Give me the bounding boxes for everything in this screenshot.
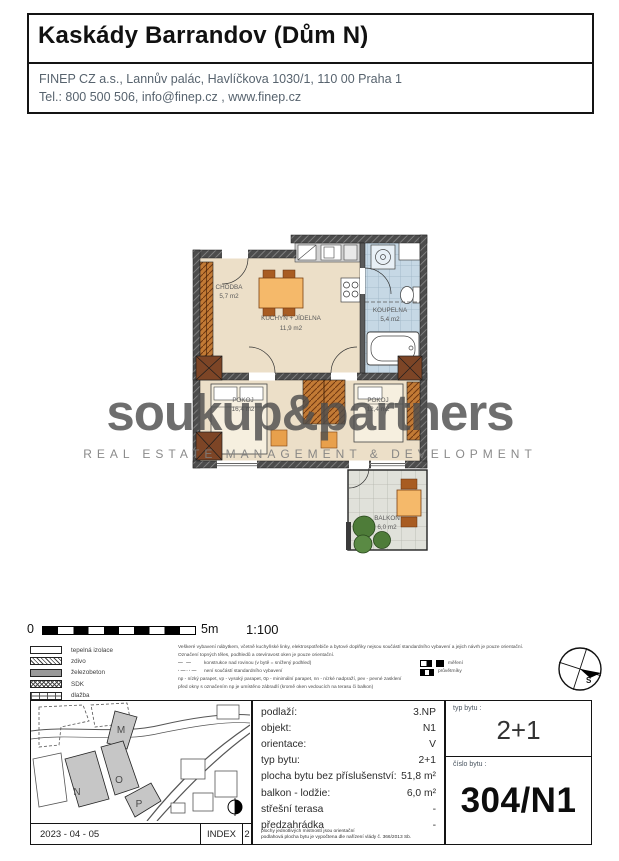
masonry-swatch [30,657,62,665]
plan-date: 2023 - 04 - 05 [31,824,200,844]
row-label: střešní terasa [261,804,323,815]
row-label: balkon - lodžie: [261,788,330,799]
table-row: podlaží:3.NP [253,704,444,720]
legend-symbol-right-label: měření [448,661,463,667]
map-compass-icon [228,798,242,816]
row-label: typ bytu: [261,755,300,766]
legend-note-3: np - nízký parapet, vp - vysoký parapet,… [178,677,554,683]
room-name-balkon: BALKON [374,515,400,522]
unit-type-cell: typ bytu : 2+1 [446,701,591,757]
sdk-swatch [30,680,62,688]
legend-label: dlažba [71,692,90,699]
footnote-2: podlahová plocha bytu je vypočtena dle n… [261,835,411,841]
dashed-line-symbol: — — [178,661,200,667]
room-name-kuchyn: KUCHYŇ + JÍDELNA [261,313,321,322]
page-title: Kaskády Barrandov (Dům N) [38,22,578,50]
room-area-balkon: 6,0 m2 [377,524,397,531]
unit-type-value: 2+1 [446,715,591,746]
table-row: střešní terasa- [253,801,444,817]
row-label: podlaží: [261,707,297,718]
unit-panel: typ bytu : 2+1 číslo bytu : 304/N1 [445,700,592,845]
unit-number-value: 304/N1 [446,781,591,821]
concrete-swatch [30,669,62,677]
building-n-label: N [73,787,80,798]
scale-ratio: 1:100 [246,622,279,637]
company-address-block: FINEP CZ a.s., Lannův palác, Havlíčkova … [39,70,579,106]
room-area-kuchyn: 11,9 m2 [280,325,303,332]
table-row: orientace:V [253,736,444,752]
legend-item-insulation: tepelná izolace [30,646,170,654]
legend-label: zdivo [71,658,86,665]
legend-label: SDK [71,681,84,688]
index-label: INDEX [200,824,242,844]
row-label: objekt: [261,723,291,734]
unit-type-label: typ bytu : [453,705,481,712]
legend-item-concrete: železobeton [30,669,170,677]
table-row: balkon - lodžie:6,0 m² [253,785,444,801]
insulation-swatch [30,646,62,654]
building-m-label: M [117,725,125,736]
row-value: 3.NP [413,707,436,718]
room-area-koupelna: 5,4 m2 [380,316,400,323]
details-rows: podlaží:3.NP objekt:N1 orientace:V typ b… [253,704,444,834]
room-name-chodba: CHODBA [216,284,244,291]
unit-number-label: číslo bytu : [453,761,486,768]
vent-icon [420,669,434,676]
legend-symbol-label: konstrukce nad rovinou (v bytě = snížený… [204,661,416,667]
row-value: N1 [423,723,436,734]
building-o-label: O [115,775,123,786]
building-p-label: P [136,799,143,810]
measurement-icon-2 [436,660,444,667]
index-value: 2 [242,824,251,844]
legend-label: železobeton [71,669,105,676]
legend-item-tile: dlažba [30,692,170,700]
tile-swatch [30,692,62,700]
legend-symbol-row-1: — — konstrukce nad rovinou (v bytě = sní… [178,660,554,667]
unit-details-table: podlaží:3.NP objekt:N1 orientace:V typ b… [252,700,445,845]
row-value: V [429,739,436,750]
dashdot-line-symbol: ·—··— [178,669,200,675]
row-label: plocha bytu bez příslušenství: [261,771,397,782]
floorplan-sheet: Kaskády Barrandov (Dům N) FINEP CZ a.s.,… [0,0,619,861]
measurement-icon [420,660,432,667]
table-row: plocha bytu bez příslušenství:51,8 m² [253,769,444,785]
watermark-tagline: REAL ESTATE MANAGEMENT & DEVELOPMENT [80,447,540,461]
table-footnotes: plochy jednotlivých místností jsou orien… [261,829,411,841]
scale-start-label: 0 [27,622,34,636]
table-row: typ bytu:2+1 [253,753,444,769]
watermark-brand: soukup&partners [80,383,540,442]
legend-note-1: Veškeré vybavení nábytkem, včetně kuchyň… [178,645,554,651]
legend-notes: Veškeré vybavení nábytkem, včetně kuchyň… [178,645,554,691]
row-label: orientace: [261,739,306,750]
table-row: objekt:N1 [253,720,444,736]
scale-end-label: 5m [201,622,218,636]
titleblock-strip: 2023 - 04 - 05 INDEX 2 [30,823,252,845]
room-name-koupelna: KOUPELNA [373,307,408,314]
legend-label: tepelná izolace [71,647,113,654]
scale-bar [42,626,196,635]
legend-symbol-right-label: průvětrníky [438,669,462,675]
legend-materials: tepelná izolace zdivo železobeton SDK dl… [30,646,170,700]
legend-item-masonry: zdivo [30,657,170,665]
room-area-chodba: 5,7 m2 [219,293,239,300]
row-value: 2+1 [419,755,436,766]
legend-item-sdk: SDK [30,680,170,688]
compass-s-label: S [586,676,592,685]
legend-note-4: před okny s označením np je umístěno záb… [178,685,554,691]
row-value: 6,0 m² [407,788,436,799]
legend-note-2: Označení topných těles, podhledů a oteví… [178,653,554,659]
legend-symbol-label: není součástí standardního vybavení [204,669,416,675]
row-value: - [433,804,436,815]
row-value: 51,8 m² [401,771,436,782]
company-contact: Tel.: 800 500 506, info@finep.cz , www.f… [39,88,579,106]
row-value: - [433,820,436,831]
company-address: FINEP CZ a.s., Lannův palác, Havlíčkova … [39,70,579,88]
unit-number-cell: číslo bytu : 304/N1 [446,757,591,844]
header-divider [27,62,594,64]
north-compass-icon: S [556,645,604,698]
legend-symbol-row-2: ·—··— není součástí standardního vybaven… [178,669,554,676]
